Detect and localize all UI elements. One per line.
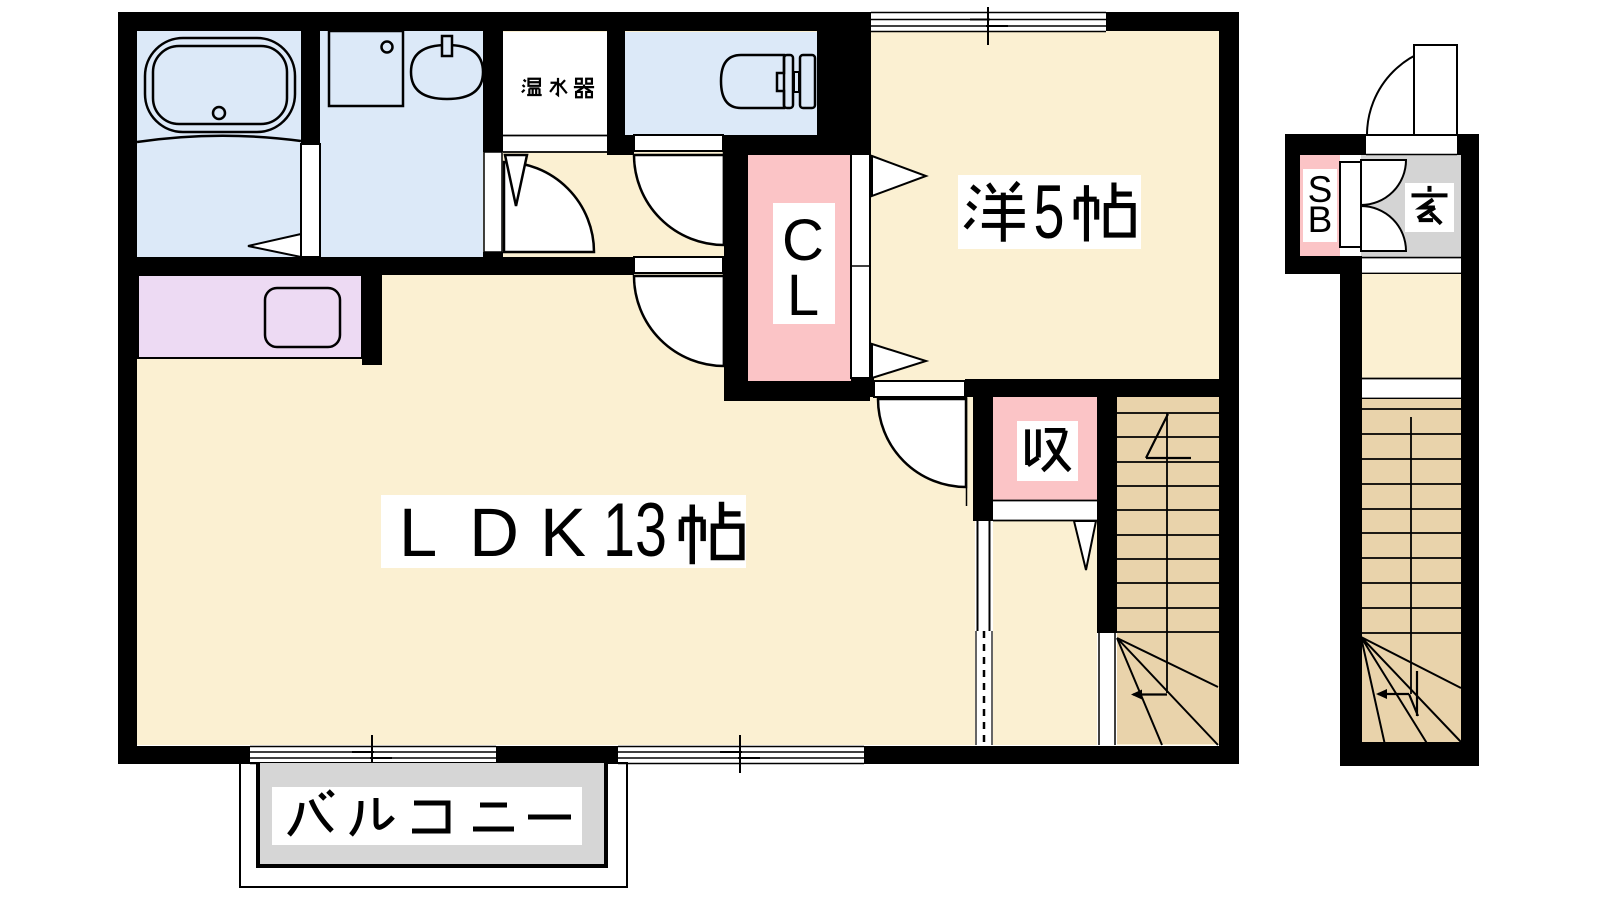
svg-text:D: D <box>469 494 519 571</box>
svg-text:5: 5 <box>1034 170 1065 255</box>
svg-text:L: L <box>399 494 437 571</box>
svg-text:K: K <box>540 494 586 571</box>
svg-text:13: 13 <box>603 488 667 573</box>
svg-text:L: L <box>787 263 819 328</box>
svg-text:B: B <box>1308 199 1333 240</box>
